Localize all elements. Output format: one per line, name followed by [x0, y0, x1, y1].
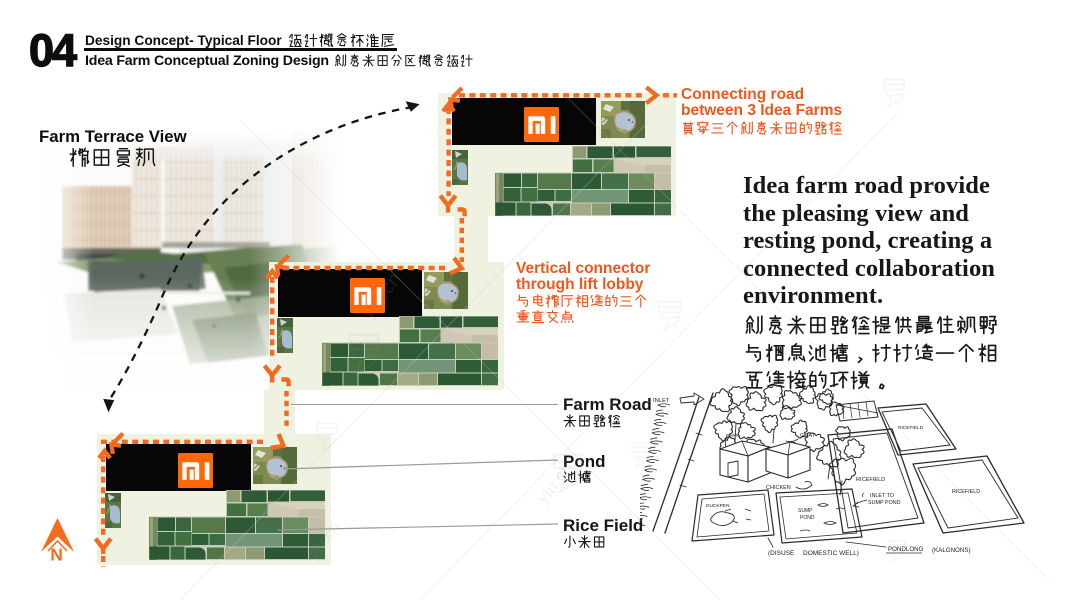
svg-text:yiu.cn: yiu.cn [305, 519, 344, 562]
svg-text:yiu.cn: yiu.cn [357, 268, 407, 323]
svg-text:yiu.cn: yiu.cn [532, 458, 577, 507]
